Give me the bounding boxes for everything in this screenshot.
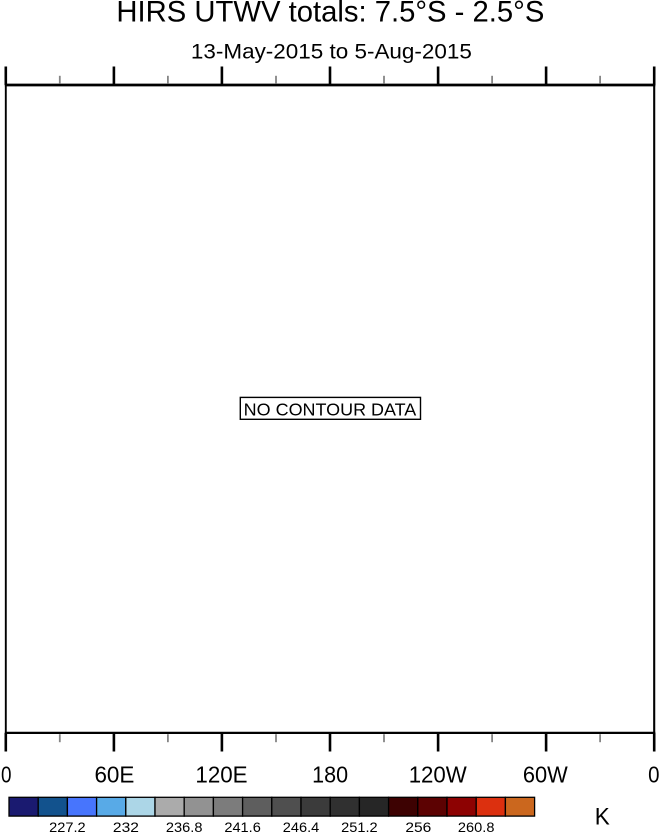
svg-text:K: K <box>595 803 610 830</box>
svg-text:241.6: 241.6 <box>224 819 261 834</box>
svg-text:120W: 120W <box>409 762 468 788</box>
svg-text:260.8: 260.8 <box>458 819 495 834</box>
svg-text:60E: 60E <box>94 762 134 788</box>
svg-text:227.2: 227.2 <box>49 819 86 834</box>
svg-text:120E: 120E <box>195 762 247 788</box>
svg-text:251.2: 251.2 <box>341 819 378 834</box>
svg-text:232: 232 <box>113 819 139 834</box>
svg-text:NO CONTOUR DATA: NO CONTOUR DATA <box>244 399 417 419</box>
svg-text:HIRS UTWV totals: 7.5°S - 2.5°: HIRS UTWV totals: 7.5°S - 2.5°S <box>116 0 544 29</box>
svg-text:60W: 60W <box>523 762 569 788</box>
svg-text:236.8: 236.8 <box>166 819 203 834</box>
svg-text:13-May-2015 to 5-Aug-2015: 13-May-2015 to 5-Aug-2015 <box>191 39 472 63</box>
svg-text:0: 0 <box>648 762 659 788</box>
svg-text:256: 256 <box>405 819 431 834</box>
svg-text:246.4: 246.4 <box>283 819 320 834</box>
svg-text:0: 0 <box>1 762 12 788</box>
svg-text:180: 180 <box>312 762 348 788</box>
